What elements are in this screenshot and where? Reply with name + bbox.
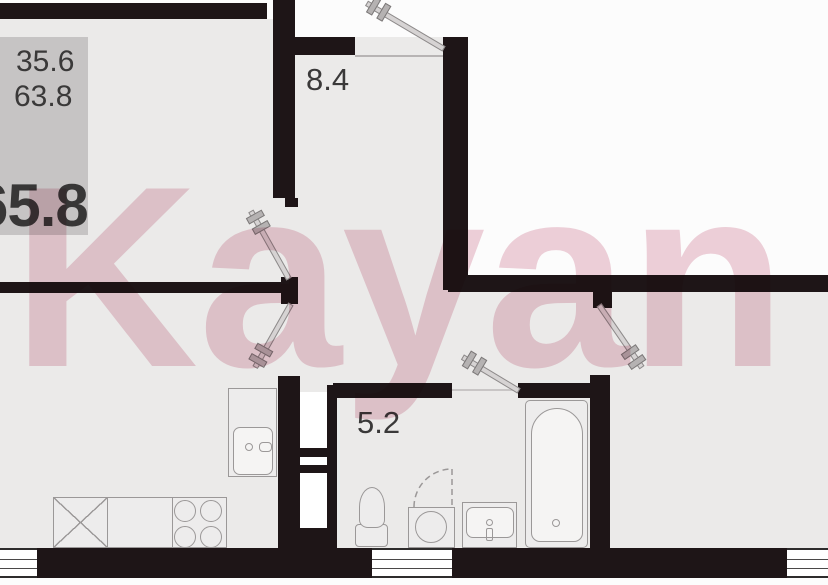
vent-shaft-cell <box>300 473 327 528</box>
door-bathroom <box>461 354 521 393</box>
wall-hallway-top <box>295 37 355 55</box>
stove-burner <box>174 526 196 548</box>
wall-bath-right <box>590 375 610 548</box>
wall-vertical-left-room <box>273 0 295 198</box>
vanity-drain <box>486 519 493 526</box>
outside-strip-bottom <box>0 578 828 585</box>
dishwasher-x-box <box>54 498 107 547</box>
vent-shaft-left <box>278 376 300 548</box>
outside-area-top-right <box>468 0 828 275</box>
door-kitchen <box>252 303 293 369</box>
room-label-hallway: 8.4 <box>306 64 349 95</box>
stove-burner <box>174 500 196 522</box>
stove-burner <box>200 526 222 548</box>
bathtub-drain <box>552 519 560 527</box>
floor-plan: 35.6 63.8 65.8 <box>0 0 828 585</box>
vent-shaft-cell <box>300 392 327 448</box>
window <box>787 548 828 578</box>
counter-divider <box>172 498 173 547</box>
washing-machine-drum <box>415 511 447 543</box>
wall-bottom-left <box>37 548 372 578</box>
wall-horizontal-left <box>0 282 287 293</box>
threshold-line <box>452 389 518 391</box>
vent-shaft-cell <box>300 457 327 465</box>
wall-bottom-right <box>452 548 787 578</box>
window <box>0 548 37 578</box>
door-swing-arc <box>410 465 456 511</box>
kitchen-sink-drain <box>245 443 253 451</box>
wall-top <box>0 3 267 19</box>
vent-shaft-bar <box>300 448 327 457</box>
area-value-middle: 63.8 <box>14 82 72 112</box>
wall-hallway-right <box>443 37 468 290</box>
area-value-top: 35.6 <box>16 47 74 77</box>
wall-stub <box>285 198 298 207</box>
vanity-tap <box>486 528 493 541</box>
stove-burner <box>200 500 222 522</box>
door-bedroom-right <box>597 303 645 369</box>
wall-horizontal-right <box>448 275 828 292</box>
vent-shaft-bar <box>300 465 327 473</box>
kitchen-sink-tap <box>259 442 272 452</box>
wall-wc-top <box>333 383 452 398</box>
wall-bath-top <box>518 383 608 398</box>
threshold-line <box>355 55 443 57</box>
door-room-left <box>248 210 291 281</box>
window <box>372 548 452 578</box>
room-label-bathroom: 5.2 <box>357 407 400 438</box>
area-value-total: 65.8 <box>0 176 88 236</box>
counter-divider <box>107 498 108 547</box>
vent-shaft-bottom <box>290 528 337 548</box>
door-jamb-center <box>281 277 298 304</box>
toilet-bowl <box>359 487 385 528</box>
vent-shaft-right <box>327 385 337 530</box>
